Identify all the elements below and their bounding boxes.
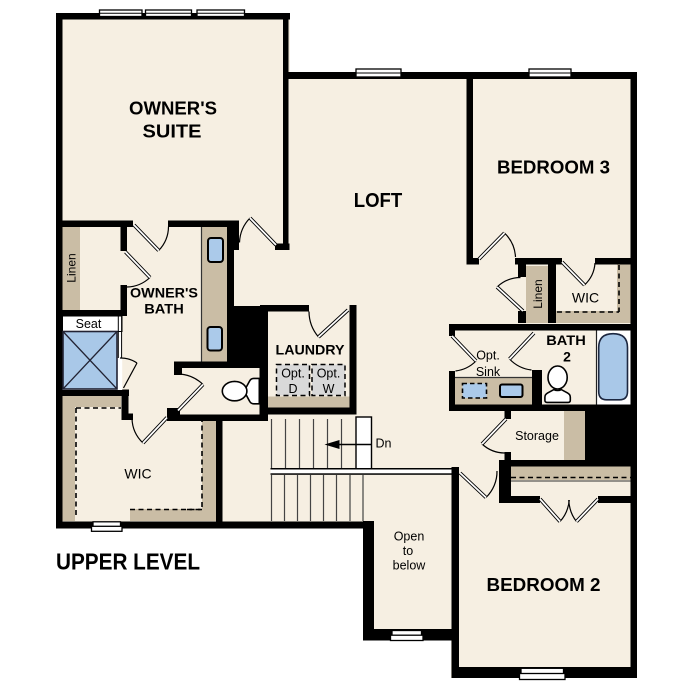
svg-text:WIC: WIC [124,466,151,482]
svg-text:Sink: Sink [476,365,501,379]
svg-text:Opt.: Opt. [281,367,305,381]
svg-text:BATH: BATH [144,301,184,317]
svg-text:Linen: Linen [65,253,79,282]
svg-text:Linen: Linen [531,279,545,308]
svg-text:BEDROOM 3: BEDROOM 3 [497,157,610,177]
svg-text:below: below [393,559,427,573]
svg-text:D: D [288,382,297,396]
svg-text:SUITE: SUITE [143,122,202,142]
svg-text:LAUNDRY: LAUNDRY [276,342,346,358]
svg-text:OWNER'S: OWNER'S [129,99,217,119]
svg-text:UPPER LEVEL: UPPER LEVEL [56,549,200,575]
svg-text:Storage: Storage [515,429,559,443]
svg-text:LOFT: LOFT [354,190,403,212]
svg-text:BATH: BATH [546,332,586,348]
svg-text:Seat: Seat [76,317,102,331]
svg-text:Dn: Dn [376,437,392,451]
svg-text:to: to [403,544,413,558]
svg-text:W: W [323,382,335,396]
svg-text:Opt.: Opt. [317,367,341,381]
svg-text:BEDROOM 2: BEDROOM 2 [487,575,601,595]
svg-text:Open: Open [394,530,425,544]
svg-text:Opt.: Opt. [476,349,500,363]
svg-text:OWNER'S: OWNER'S [130,285,198,301]
svg-text:WIC: WIC [572,290,599,306]
svg-text:2: 2 [563,349,571,365]
